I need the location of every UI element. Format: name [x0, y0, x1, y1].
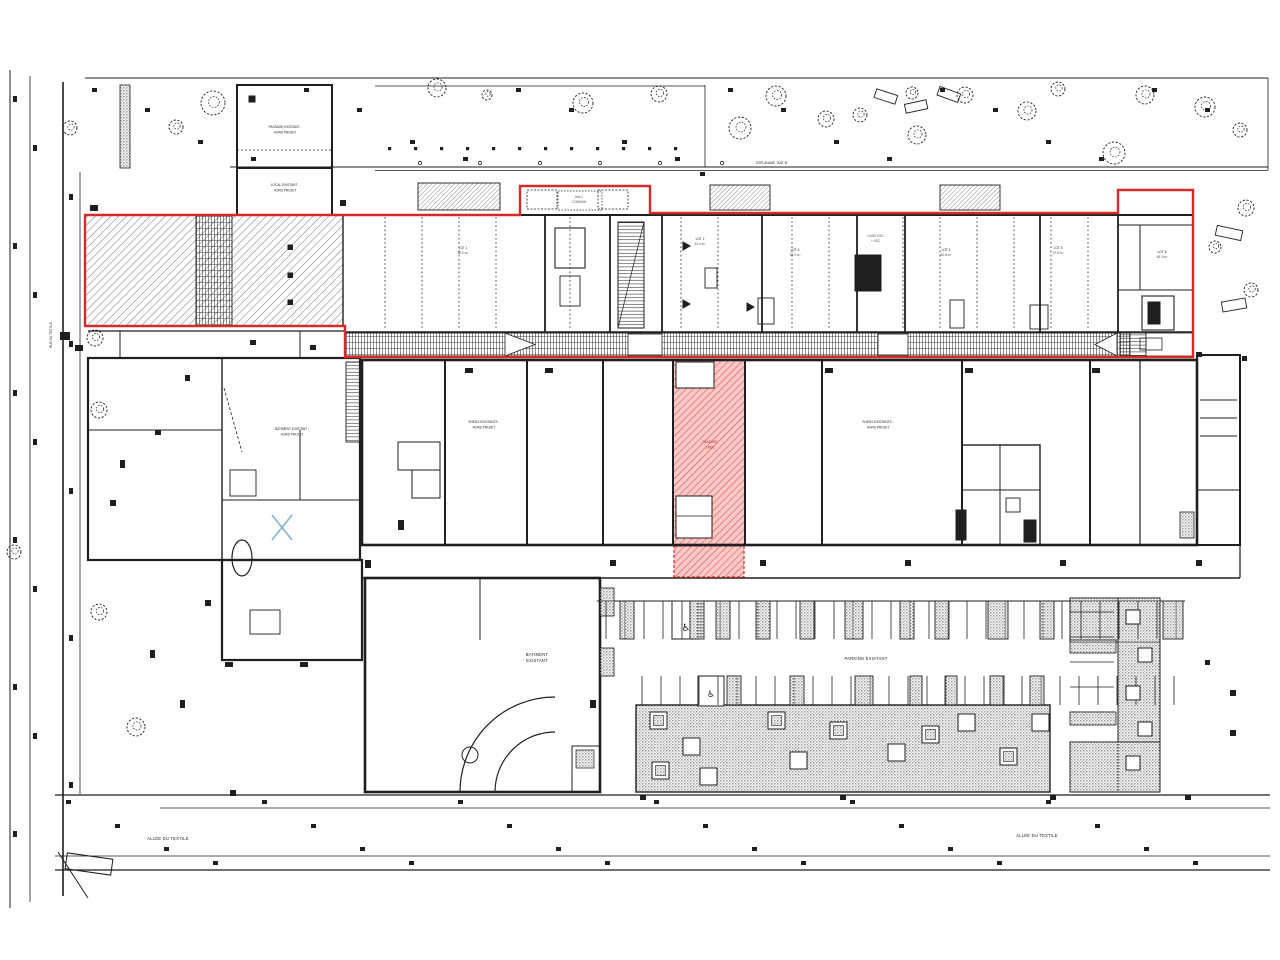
paver-mark [414, 147, 417, 150]
unit-label: LOT 1 [459, 246, 468, 250]
detail-mark [1060, 560, 1066, 566]
detail-mark [250, 340, 256, 345]
staircase [1120, 332, 1146, 356]
parking-island [690, 601, 704, 639]
tree-symbol-inner [1249, 286, 1255, 292]
label-allee-right: ALLÉE DU TEXTILE [1016, 833, 1058, 838]
tree-symbol [1051, 82, 1065, 96]
detail-mark [310, 345, 316, 350]
road-mark [311, 824, 316, 828]
paver-mark [518, 147, 521, 150]
road-mark [654, 800, 659, 804]
road-mark [262, 800, 267, 804]
road-mark [1095, 824, 1100, 828]
road-mark [69, 488, 73, 494]
detail-mark [155, 430, 161, 435]
tree-symbol-inner [1024, 106, 1032, 114]
parking-island [727, 676, 741, 705]
tree-symbol-inner [773, 91, 782, 100]
label-rue-vertical: RUE DU TEXTILE [49, 322, 53, 348]
parking-island [756, 601, 770, 639]
detail-mark [640, 795, 646, 800]
unit-label: LOT 2 [696, 237, 705, 241]
tree-symbol [1238, 200, 1254, 216]
tree-symbol-inner [1238, 126, 1244, 132]
parking-island [845, 601, 863, 639]
tree-symbol-inner [68, 124, 74, 130]
road-mark [703, 824, 708, 828]
detail-mark [545, 368, 553, 373]
planter-box [1126, 686, 1140, 700]
tree-symbol-inner [96, 607, 103, 614]
road-mark [622, 140, 627, 144]
parking-island [990, 676, 1004, 705]
road-mark [13, 537, 17, 543]
elevator-core [855, 255, 881, 291]
parking-island [855, 676, 873, 705]
paver-mark [466, 147, 469, 150]
paver-mark [492, 147, 495, 150]
detail-mark [1230, 690, 1236, 696]
tree-symbol-inner [12, 548, 18, 554]
detail-mark [180, 700, 185, 708]
label-allee-left: ALLÉE DU TEXTILE [147, 836, 189, 841]
svg-text:62.8 m²: 62.8 m² [941, 253, 952, 257]
tree-symbol [853, 108, 867, 122]
tree-symbol-inner [858, 111, 864, 117]
planter-box [958, 714, 975, 731]
tree-symbol-inner [1243, 203, 1250, 210]
road-mark [13, 390, 17, 396]
road-mark [463, 157, 468, 161]
road-mark [556, 847, 561, 851]
road-mark [13, 684, 17, 690]
label-core: CAGE ESC. [867, 234, 884, 238]
road-mark [69, 635, 73, 641]
detail-mark [760, 560, 766, 566]
paver-mark [674, 147, 677, 150]
bottom-left-building [365, 578, 600, 792]
svg-text:61.4 m²: 61.4 m² [695, 242, 706, 246]
road-mark [213, 861, 218, 865]
detail-mark [590, 700, 596, 708]
planter-box [1032, 714, 1049, 731]
parking-island [1070, 712, 1116, 725]
road-mark [1046, 140, 1051, 144]
road-mark [69, 194, 73, 200]
detail-mark [300, 662, 308, 667]
unit-label: LOT 6 [1158, 250, 1167, 254]
tree-symbol-inner [656, 89, 663, 96]
unit-label: LOT 3 [791, 248, 800, 252]
road-mark [409, 861, 414, 865]
road-mark [115, 824, 120, 828]
tree-symbol [818, 111, 834, 127]
tree-symbol-inner [823, 114, 830, 121]
svg-text:HORS PROJET: HORS PROJET [274, 189, 297, 193]
road-mark [752, 847, 757, 851]
planted-hatch-area [1070, 742, 1160, 792]
tree-symbol [91, 604, 107, 620]
road-mark [1046, 800, 1051, 804]
tree-symbol [91, 402, 107, 418]
misc-right-marks [874, 86, 1247, 312]
road-mark [164, 847, 169, 851]
parking-island [988, 601, 1008, 639]
detail-mark [90, 205, 98, 211]
road-mark [92, 88, 97, 92]
tree-symbol [766, 86, 786, 106]
road-mark [458, 800, 463, 804]
parking-island [1070, 640, 1116, 653]
planter-box-fill [926, 730, 936, 740]
label-esplanade: ESPLANADE "AXE B" [756, 161, 788, 165]
svg-text:HORS PROJET: HORS PROJET [867, 426, 890, 430]
parking-island [800, 601, 814, 639]
tree-symbol-inner [1213, 243, 1218, 248]
tree-symbol [63, 121, 77, 135]
tree-symbol-inner [1142, 90, 1150, 98]
svg-text:48.3 m²: 48.3 m² [1157, 255, 1168, 259]
svg-text:35.0 m²: 35.0 m² [790, 253, 801, 257]
detail-mark [825, 368, 833, 373]
svg-text:CRÉÉ: CRÉÉ [706, 445, 715, 450]
paver-mark [648, 147, 651, 150]
road-mark [360, 847, 365, 851]
road-mark [834, 140, 839, 144]
parking-island [1030, 676, 1044, 705]
paver-mark [570, 147, 573, 150]
road-mark [940, 88, 945, 92]
road-mark [13, 243, 17, 249]
tree-symbol-inner [1056, 85, 1062, 91]
road-mark [675, 157, 680, 161]
tree-symbol [729, 117, 751, 139]
road-mark [516, 88, 521, 92]
road-mark [1193, 861, 1198, 865]
road-mark [13, 831, 17, 837]
tree-symbol [906, 87, 918, 99]
road-mark [69, 782, 73, 788]
label-passage-existant: PASSAGE EXISTANT - [268, 125, 301, 129]
tree-symbol [573, 93, 593, 113]
tree-symbol [169, 120, 183, 134]
road-mark [507, 824, 512, 828]
tree-symbol-inner [962, 90, 969, 97]
label-created-passage: PASSAGE [703, 440, 718, 444]
road-mark [993, 108, 998, 112]
unit-label: LOT 4 [942, 248, 951, 252]
road-mark [145, 108, 150, 112]
tree-symbol-inner [486, 92, 491, 97]
road-mark [410, 140, 415, 144]
tree-symbol [1018, 102, 1036, 120]
detail-mark [1092, 368, 1100, 373]
road-mark [899, 824, 904, 828]
left-existing-building [88, 331, 362, 660]
paver-mark [544, 147, 547, 150]
site-plan-drawing: ♿ ♿ PASSAGE EXISTANT - HORS PROJET [0, 0, 1280, 960]
tree-symbol-inner [1110, 147, 1120, 157]
tree-symbol [428, 79, 446, 97]
road-mark [13, 96, 17, 102]
detail-mark [60, 332, 70, 340]
paver-mark [440, 147, 443, 150]
road-mark [728, 88, 733, 92]
svg-text:57.6 m²: 57.6 m² [1053, 251, 1064, 255]
parking-island [716, 601, 730, 639]
detail-mark [340, 200, 346, 206]
svg-text:HORS PROJET: HORS PROJET [281, 433, 304, 437]
paver-mark [388, 147, 391, 150]
parking-island [1040, 601, 1054, 639]
detail-mark [75, 345, 83, 351]
label-sheds-left: SHEDS EXISTANTS - [468, 420, 499, 424]
svg-text:58.2 m²: 58.2 m² [458, 251, 469, 255]
label-batiment-existant: BATIMENT [526, 652, 549, 657]
road-mark [887, 157, 892, 161]
bollard [478, 161, 481, 164]
parking-island [620, 601, 634, 639]
parking-island [1163, 601, 1183, 639]
tree-symbol [127, 718, 145, 736]
parking-island [910, 676, 922, 705]
tree-symbol [87, 330, 103, 346]
detail-mark [465, 368, 473, 373]
planter-box-fill [656, 766, 666, 776]
label-parking-existant: PARKING EXISTANT [844, 656, 887, 661]
road-mark [33, 439, 37, 445]
gallery-walkway [345, 333, 1130, 356]
planter-box-fill [654, 716, 664, 726]
tree-symbol [7, 545, 21, 559]
tree-symbol [1244, 283, 1258, 297]
tree-symbol-inner [910, 89, 915, 94]
bollard [598, 161, 601, 164]
road-mark [251, 157, 256, 161]
detail-mark [150, 650, 155, 658]
planter-box [888, 744, 905, 761]
parking-island [945, 676, 957, 705]
detail-mark [1185, 795, 1191, 800]
detail-mark [1196, 560, 1202, 566]
floor-plan-canvas: ♿ ♿ PASSAGE EXISTANT - HORS PROJET [0, 0, 1280, 960]
detail-mark [1242, 356, 1247, 361]
detail-mark [610, 560, 616, 566]
road-mark [33, 145, 37, 151]
detail-mark [230, 790, 236, 796]
road-mark [605, 861, 610, 865]
tree-symbol-inner [580, 98, 589, 107]
tree-symbol [1136, 86, 1154, 104]
label-local-existant: LOCAL EXISTANT - [271, 183, 299, 187]
planter-box [790, 752, 807, 769]
tree-symbol-inner [209, 97, 220, 108]
label-batiment-existant-hp: BATIMENT EXISTANT - [275, 427, 309, 431]
tree-symbol-inner [92, 333, 99, 340]
road-mark [997, 861, 1002, 865]
road-mark [1144, 847, 1149, 851]
tree-symbol [651, 86, 667, 102]
detail-mark [1196, 352, 1202, 357]
bollard [658, 161, 661, 164]
road-mark [66, 800, 71, 804]
unit-label: LOT 5 [1054, 246, 1063, 250]
road-mark [569, 108, 574, 112]
detail-mark [1205, 660, 1210, 665]
road-mark [357, 108, 362, 112]
planter-box [1126, 756, 1140, 770]
road-mark [33, 586, 37, 592]
bollard [538, 161, 541, 164]
detail-mark [225, 662, 233, 667]
sheds-building [362, 355, 1240, 578]
paver-mark [596, 147, 599, 150]
parking-island [935, 601, 949, 639]
detail-mark [840, 795, 846, 800]
detail-mark [185, 375, 190, 381]
created-passage-zone-dashed [674, 546, 744, 577]
tree-symbol-inner [736, 122, 746, 132]
tree-symbol-inner [96, 405, 103, 412]
tree-symbol [1209, 241, 1221, 253]
planter-box-fill [1004, 752, 1014, 762]
label-hall: HALL [575, 195, 583, 199]
svg-text:EXISTANT: EXISTANT [526, 658, 548, 663]
accessible-parking-icon: ♿ [682, 623, 691, 634]
detail-mark [1050, 795, 1056, 800]
road-mark [781, 108, 786, 112]
road-mark [304, 88, 309, 92]
road-mark [948, 847, 953, 851]
detail-mark [205, 600, 211, 606]
planter-box-fill [772, 716, 782, 726]
bollard [418, 161, 421, 164]
road-mark [33, 733, 37, 739]
road-mark [850, 800, 855, 804]
detail-mark [700, 172, 705, 176]
paver-mark [622, 147, 625, 150]
road-mark [1205, 108, 1210, 112]
planter-box-fill [834, 726, 844, 736]
tree-symbol [1233, 123, 1247, 137]
road-mark [69, 341, 73, 347]
detail-mark [110, 500, 116, 506]
detail-mark [365, 560, 371, 568]
svg-text:HORS PROJET: HORS PROJET [274, 131, 297, 135]
detail-mark [1230, 730, 1236, 736]
planter-box [683, 738, 700, 755]
detail-mark [398, 520, 404, 530]
tree-symbol-inner [133, 722, 141, 730]
accessible-parking-icon: ♿ [707, 689, 715, 699]
parking-island [790, 676, 804, 705]
svg-text:HORS PROJET: HORS PROJET [473, 426, 496, 430]
tree-symbol-inner [174, 123, 180, 129]
canopy-hatches [418, 183, 1000, 210]
bollard [720, 161, 723, 164]
top-left-existing-blocks [120, 85, 332, 215]
planter-box [1138, 648, 1152, 662]
road-mark [1099, 157, 1104, 161]
road-mark [198, 140, 203, 144]
road-mark [801, 861, 806, 865]
planter-box [1126, 610, 1140, 624]
tree-symbol-inner [914, 130, 922, 138]
detail-mark [965, 368, 973, 373]
svg-text:COMMUN: COMMUN [572, 200, 587, 204]
tree-symbol [201, 91, 225, 115]
planter-box [1138, 722, 1152, 736]
tree-symbol [1195, 97, 1215, 117]
tree-symbol [482, 90, 492, 100]
label-sheds-right: SHEDS EXISTANTS - [862, 420, 893, 424]
planter-box [700, 768, 717, 785]
detail-mark [905, 560, 911, 566]
detail-mark [120, 460, 125, 468]
road-mark [33, 292, 37, 298]
road-mark [1152, 88, 1157, 92]
tree-symbol [908, 126, 926, 144]
svg-text:+ ASC.: + ASC. [871, 239, 881, 243]
parking-island [900, 601, 914, 639]
tree-symbol [1103, 142, 1125, 164]
tree-symbol-inner [434, 83, 442, 91]
